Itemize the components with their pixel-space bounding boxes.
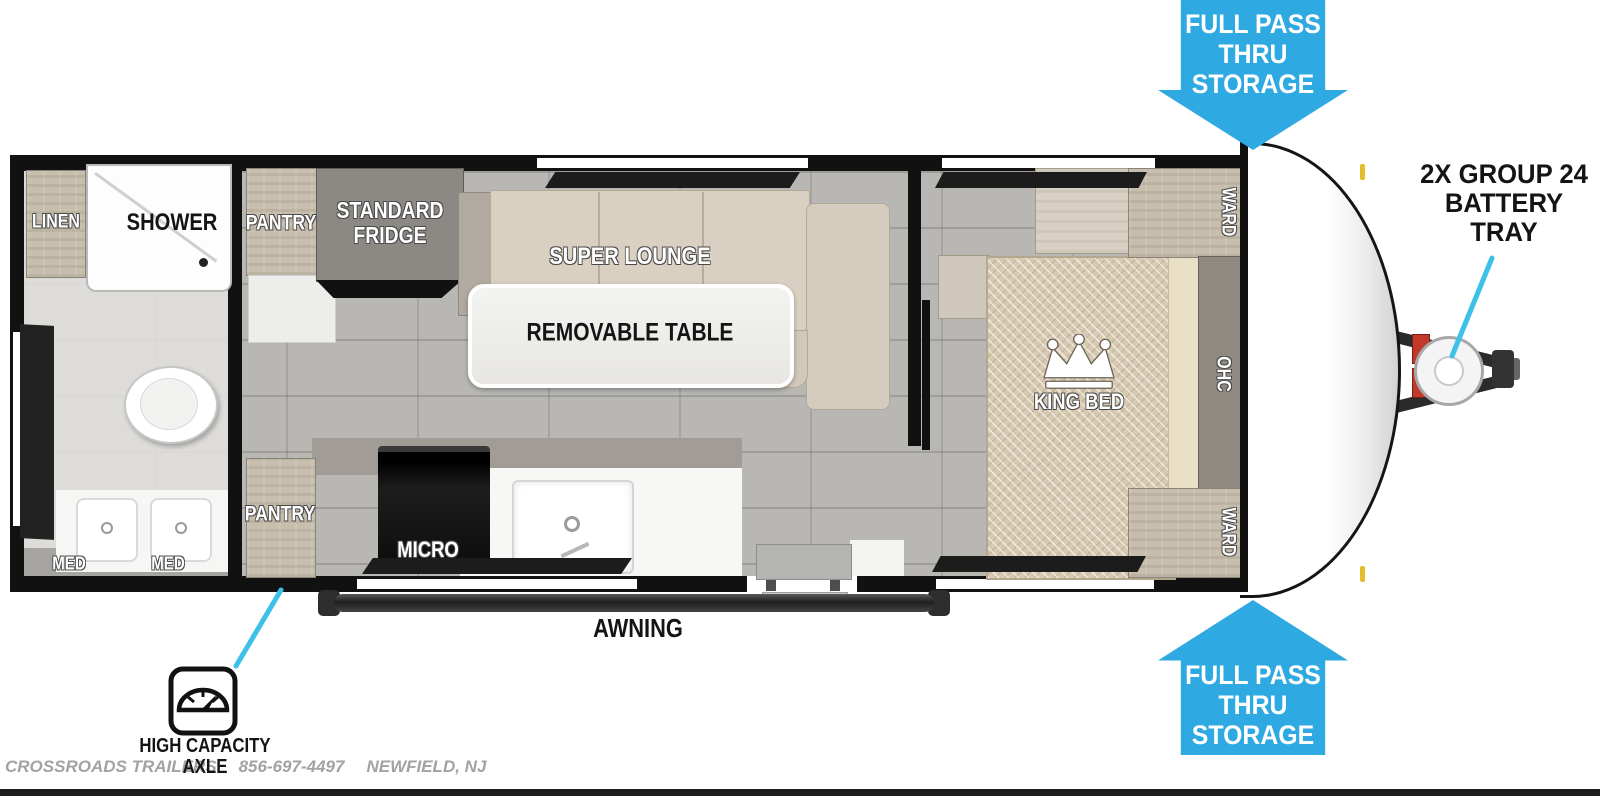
axle-label: HIGH CAPACITY AXLE: [129, 736, 280, 778]
storage-arrow-bottom: FULL PASS THRU STORAGE: [1158, 600, 1348, 755]
bedroom-door-wall: [922, 300, 930, 450]
ward-bottom-label: WARD: [1217, 508, 1238, 557]
footer-bar: [0, 789, 1600, 796]
front-cap: [1240, 142, 1401, 598]
bedroom-wall: [908, 163, 921, 446]
sink-left-drain: [101, 522, 113, 534]
bedroom-top-window: [942, 158, 1155, 168]
ohc-label: OHC: [1212, 356, 1233, 391]
storage-arrow-top: FULL PASS THRU STORAGE: [1158, 0, 1348, 150]
lounge-window-slat: [545, 172, 800, 188]
axle-callout-line: [236, 590, 281, 666]
shower-label: SHOWER: [127, 210, 218, 236]
storage-top-label: FULL PASS THRU STORAGE: [1166, 9, 1341, 99]
table-label: REMOVABLE TABLE: [527, 320, 734, 347]
sink-right-drain: [175, 522, 187, 534]
bedroom-bottom-window: [936, 579, 1154, 589]
propane-tank-cap: [1434, 356, 1464, 386]
bedroom-bottom-window-slat: [932, 556, 1146, 572]
toilet-seat: [140, 378, 198, 430]
crown-icon: [1034, 334, 1124, 390]
front-wall: [1240, 142, 1248, 592]
hitch-coupler: [1492, 350, 1514, 388]
clearance-light-bottom: [1360, 566, 1365, 582]
fridge-label: STANDARD FRIDGE: [337, 198, 444, 248]
micro-label: MICRO: [397, 538, 459, 562]
tv-panel: [20, 324, 54, 540]
lounge-window: [537, 158, 808, 168]
ward-top-label: WARD: [1217, 188, 1238, 237]
awning-label: AWNING: [593, 614, 683, 642]
bedroom-top-window-slat: [935, 172, 1147, 188]
lounge-label: SUPER LOUNGE: [549, 244, 710, 270]
linen-label: LINEN: [32, 213, 80, 234]
pantry-bottom-label: PANTRY: [245, 504, 316, 527]
lounge-chaise-right: [806, 203, 890, 410]
entry-step-bench: [756, 544, 852, 580]
entry-landing: [850, 540, 904, 576]
kitchen-sink-drain: [564, 516, 580, 532]
fridge-shadow: [316, 280, 462, 298]
king-bed-label: KING BED: [1034, 390, 1124, 414]
nightstand: [938, 255, 990, 319]
pantry-top-label: PANTRY: [246, 213, 317, 236]
floorplan-canvas: LINEN SHOWER MED MED PANTRY STANDARD FRI…: [0, 0, 1600, 796]
med-left-label: MED: [52, 554, 86, 573]
med-right-label: MED: [151, 554, 185, 573]
shower-drain: [199, 258, 208, 267]
battery-tray-label: 2X GROUP 24 BATTERY TRAY: [1413, 160, 1595, 247]
clearance-light-top: [1360, 164, 1365, 180]
scale-icon: [166, 664, 240, 738]
storage-bottom-label: FULL PASS THRU STORAGE: [1166, 660, 1341, 750]
awning-tube: [334, 594, 934, 612]
kitchen-window: [357, 579, 637, 589]
footer-location: NEWFIELD, NJ: [366, 757, 486, 777]
